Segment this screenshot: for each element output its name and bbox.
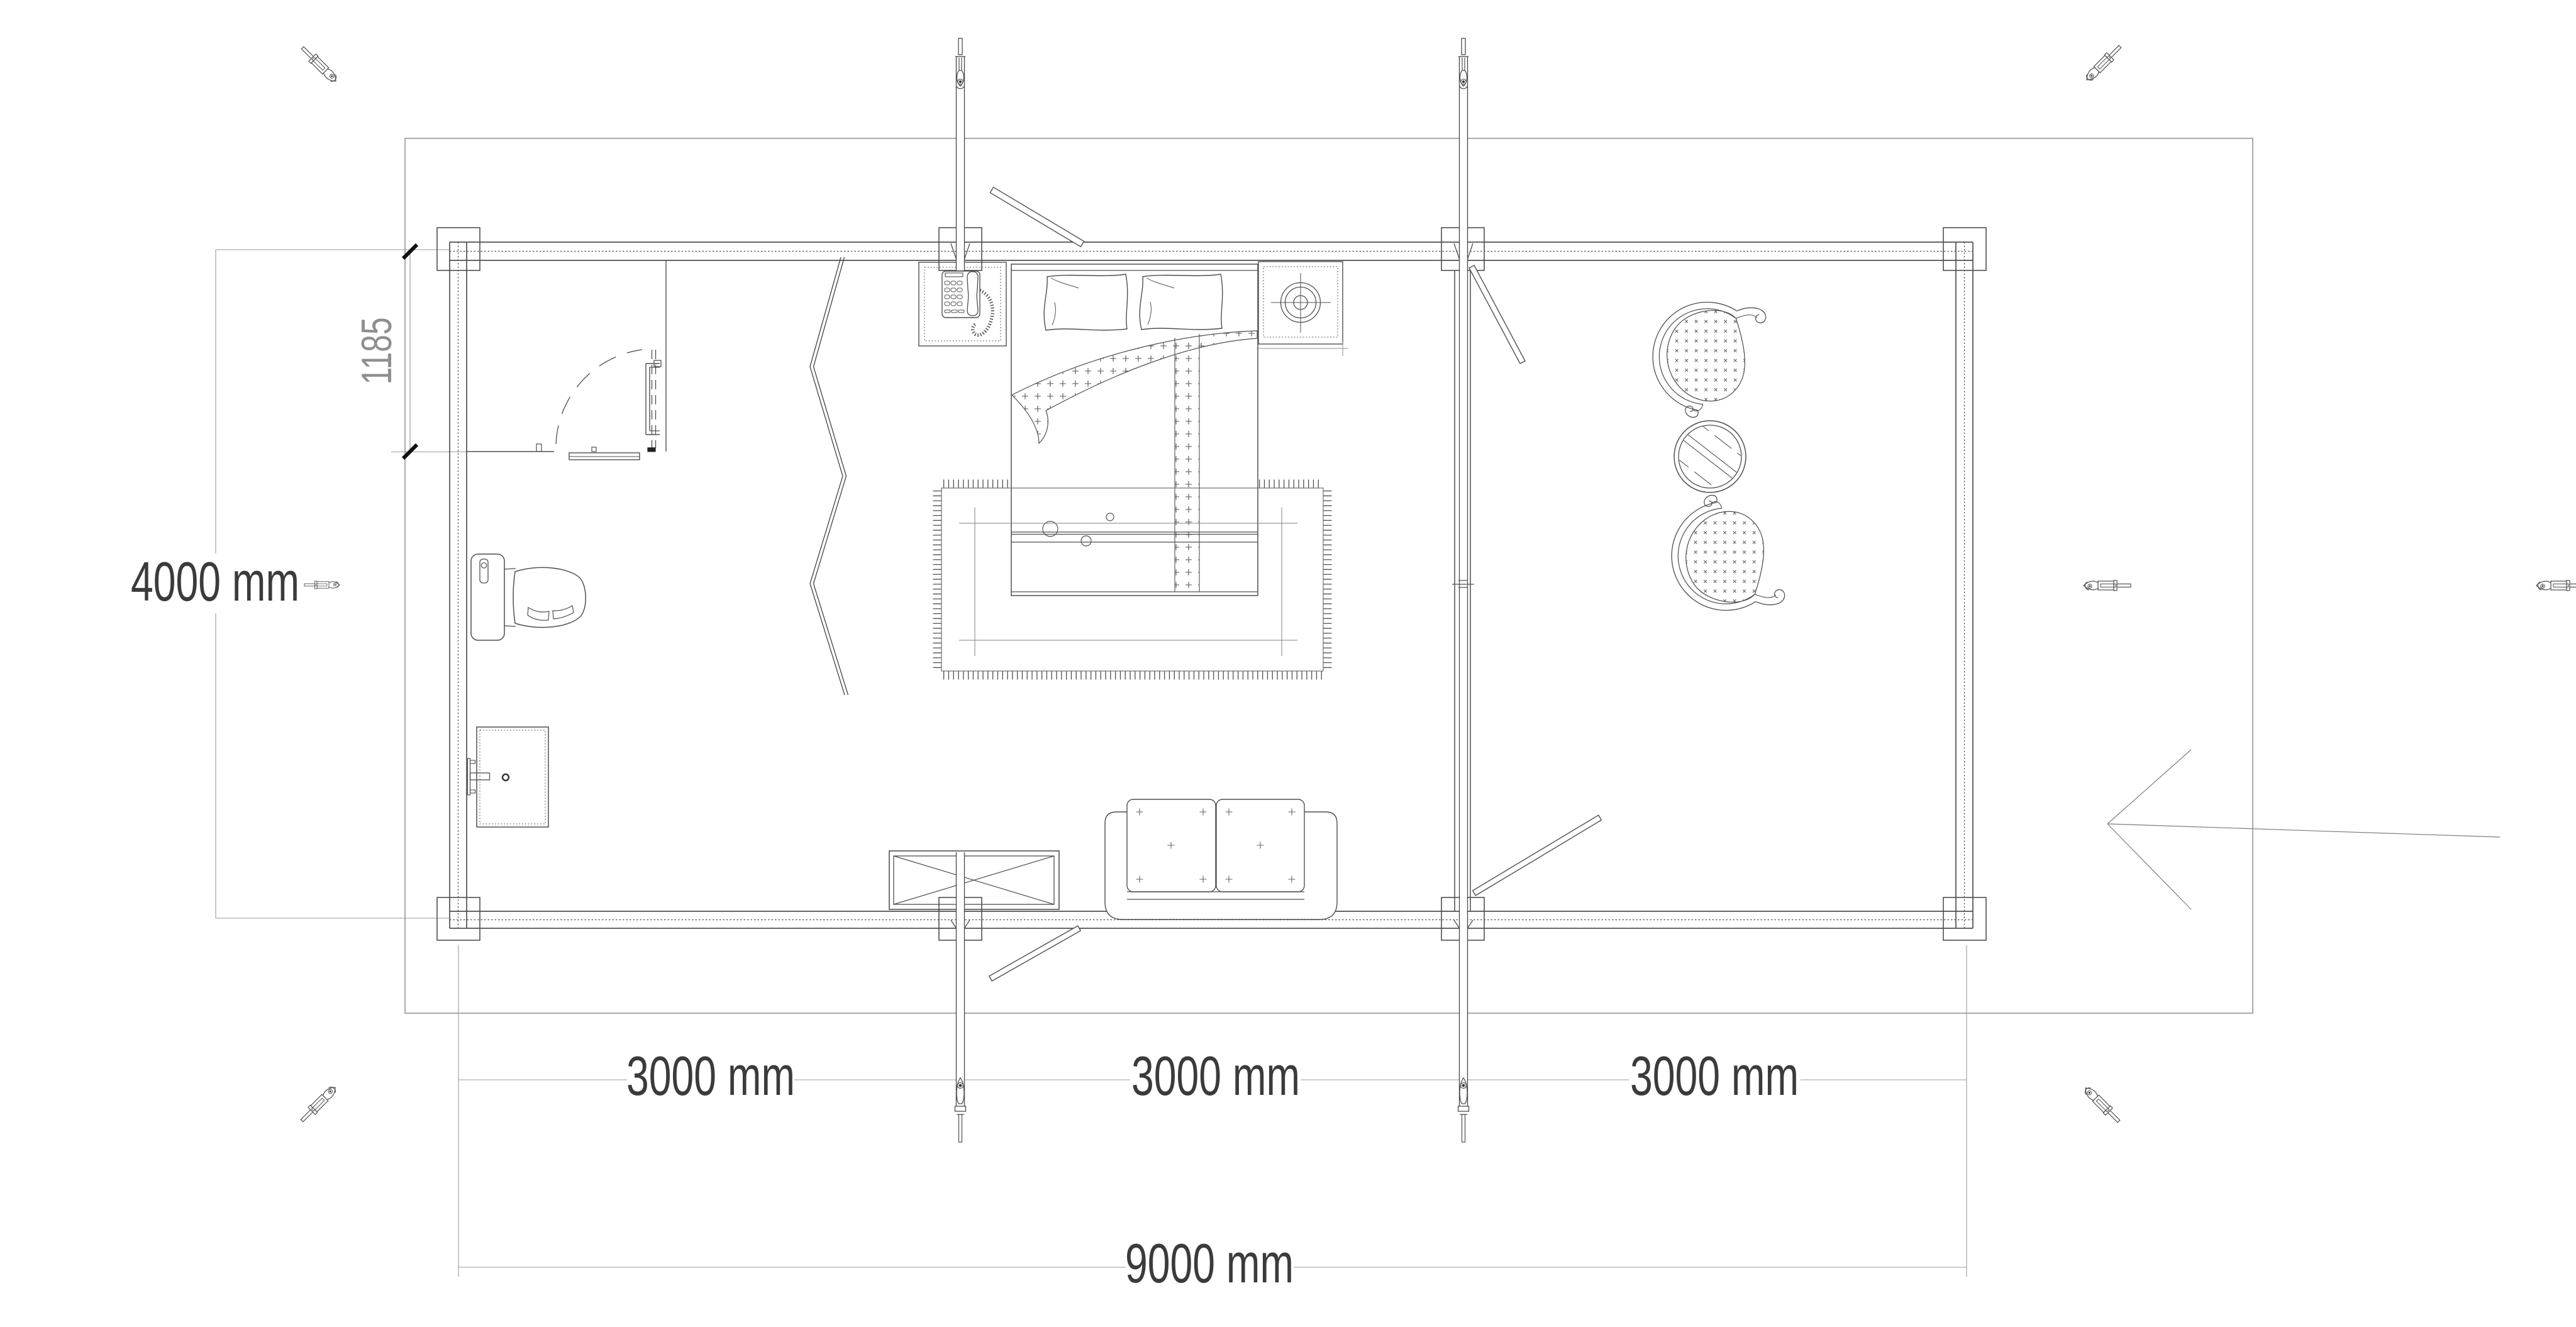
svg-text:1185: 1185 bbox=[353, 318, 401, 385]
svg-text:3000 mm: 3000 mm bbox=[1630, 1045, 1799, 1107]
svg-text:3000 mm: 3000 mm bbox=[626, 1045, 795, 1107]
svg-text:4000 mm: 4000 mm bbox=[131, 550, 299, 613]
svg-text:9000 mm: 9000 mm bbox=[1125, 1232, 1294, 1294]
svg-text:3000 mm: 3000 mm bbox=[1131, 1045, 1300, 1107]
